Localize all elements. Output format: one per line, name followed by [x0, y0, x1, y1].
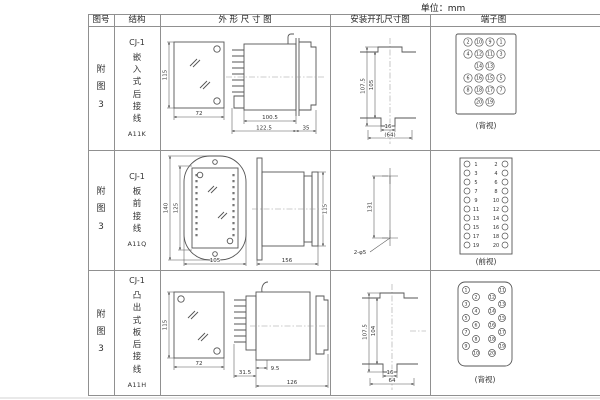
terminal-number: 12 — [493, 207, 499, 213]
terminal-pins — [232, 50, 244, 92]
terminal-grid: 1357924681012141618201113151719 — [463, 287, 506, 357]
outline-drawing-a11q: 140 125 105 156 115 — [160, 150, 330, 270]
header-figure-no: 图号 — [88, 14, 114, 26]
terminal-number: 15 — [473, 225, 479, 231]
terminal-number: 14 — [476, 64, 482, 70]
terminal-number: 18 — [493, 234, 499, 240]
terminal-number: 20 — [493, 243, 499, 249]
terminal-number: 20 — [476, 100, 482, 106]
terminal-number: 5 — [465, 316, 468, 322]
dim-flange-width: 105 — [210, 258, 221, 264]
front-view: 115 72 — [163, 42, 225, 120]
terminal-number: 10 — [493, 198, 499, 204]
terminal-number: 19 — [473, 243, 479, 249]
terminal-number: 11 — [473, 207, 479, 213]
terminal-drawing-a11h: 1357924681012141618201113151719 (背视) — [430, 270, 557, 395]
dim-depth-total: 122.5 — [256, 126, 272, 132]
terminal-circle — [464, 206, 470, 212]
header-structure: 结构 — [114, 14, 160, 26]
terminal-number: 2 — [466, 40, 469, 46]
outline-drawing-a11k: 115 72 100.5 122.5 35 — [160, 26, 330, 150]
view-label: (背视) — [476, 120, 497, 130]
terminal-number: 20 — [489, 351, 495, 357]
terminal-circle — [502, 161, 508, 167]
dim-cutout-inner-height: 104 — [371, 325, 377, 336]
terminal-svg-a11q: 135791113151719 2468101214161820 (前视) — [430, 150, 557, 270]
terminal-svg-a11h: 1357924681012141618201113151719 (背视) — [430, 270, 557, 395]
structure-code: A11H — [128, 381, 147, 389]
terminal-number: 12 — [489, 295, 495, 301]
terminal-circle — [464, 242, 470, 248]
terminal-number: 19 — [499, 344, 505, 350]
front-bezel — [299, 42, 316, 110]
dim-front-height: 115 — [163, 319, 169, 330]
terminal-number: 4 — [494, 171, 497, 177]
terminal-number: 6 — [466, 76, 469, 82]
terminal-number: 10 — [473, 351, 479, 357]
terminal-number: 11 — [499, 288, 505, 294]
install-drawing-a11q: 131 2-φ5 — [330, 150, 430, 270]
structure-code: A11Q — [127, 240, 146, 248]
terminal-circle — [464, 179, 470, 185]
front-view: 115 72 — [163, 292, 225, 370]
panel-cutout-profile: 107.5 104 16 64 — [362, 284, 426, 390]
model-label: CJ-1 — [129, 276, 145, 285]
terminal-number: 18 — [476, 88, 482, 94]
install-svg-a11h: 107.5 104 16 64 — [330, 270, 430, 395]
structure-type-text: 凸出式板后接线 — [132, 290, 143, 376]
terminal-drawing-a11k: 2109141211314136161558181772019 (背视) — [430, 26, 557, 150]
terminal-circle — [464, 224, 470, 230]
dim-cutout-width: (64) — [384, 133, 395, 139]
dim-tab-width: 16 — [385, 124, 392, 130]
front-view: 140 125 105 — [164, 156, 247, 266]
terminal-circle — [502, 179, 508, 185]
figure-no-cell-a11h: 附图3 — [88, 270, 114, 395]
dim-body-height: 125 — [174, 202, 180, 213]
outline-drawing-a11h: 115 72 9.5 31.5 126 — [160, 270, 330, 395]
dim-body-length: 126 — [287, 380, 298, 386]
dim-offset: 9.5 — [271, 366, 280, 372]
terminal-number: 16 — [489, 323, 495, 329]
terminal-circle — [502, 197, 508, 203]
glass-slash-marks — [188, 311, 208, 341]
terminal-number: 8 — [475, 337, 478, 343]
terminal-number: 5 — [499, 76, 502, 82]
terminal-circle — [502, 188, 508, 194]
side-view: 156 115 — [252, 158, 329, 266]
figure-no-text: 附图3 — [96, 307, 107, 358]
dim-tab-width: 16 — [387, 370, 394, 376]
figure-no-text: 附图3 — [96, 184, 107, 235]
terminal-number: 15 — [499, 316, 505, 322]
terminal-circle — [464, 188, 470, 194]
terminal-number: 1 — [499, 40, 502, 46]
dim-side-height: 115 — [323, 203, 329, 214]
terminal-number: 6 — [475, 323, 478, 329]
dim-flange-height: 140 — [164, 202, 170, 213]
terminal-circle — [502, 215, 508, 221]
side-view: 100.5 122.5 35 — [226, 34, 324, 134]
install-svg-a11k: 107.5 105 16 (64) — [330, 26, 430, 150]
dim-depth-1: 100.5 — [262, 115, 278, 121]
terminal-svg-a11k: 2109141211314136161558181772019 (背视) — [430, 26, 557, 150]
terminal-grid: 2109141211314136161558181772019 — [464, 38, 505, 106]
dim-front-width: 72 — [196, 111, 203, 117]
dim-front-height: 115 — [163, 69, 169, 80]
hole-spec-label: 2-φ5 — [354, 250, 367, 256]
drill-hole-layout: 131 2-φ5 — [354, 168, 398, 256]
terminal-number: 12 — [476, 52, 482, 58]
terminal-number: 13 — [487, 64, 493, 70]
terminal-number: 16 — [493, 225, 499, 231]
dim-bezel-depth: 35 — [303, 126, 310, 132]
structure-cell-a11k: CJ-1 嵌入式后接线 A11K — [114, 26, 160, 150]
mounting-flange — [184, 156, 246, 260]
terminal-grid-left: 135791113151719 — [464, 161, 479, 249]
terminal-circle — [464, 161, 470, 167]
terminal-number: 17 — [499, 330, 505, 336]
clip-detail — [262, 282, 268, 292]
terminal-number: 8 — [466, 88, 469, 94]
table-border-bottom — [88, 395, 600, 396]
terminal-number: 19 — [487, 100, 493, 106]
terminal-number: 3 — [499, 52, 502, 58]
terminal-number: 18 — [489, 337, 495, 343]
terminal-circle — [502, 206, 508, 212]
structure-type-text: 板前接线 — [132, 186, 143, 235]
glass-slash-marks — [190, 59, 210, 89]
terminal-pins — [234, 300, 246, 342]
terminal-circle — [502, 242, 508, 248]
terminal-number: 14 — [489, 309, 495, 315]
terminal-number: 15 — [487, 76, 493, 82]
install-svg-a11q: 131 2-φ5 — [330, 150, 430, 270]
structure-cell-a11q: CJ-1 板前接线 A11Q — [114, 150, 160, 270]
terminal-number: 16 — [476, 76, 482, 82]
structure-type-text: 嵌入式后接线 — [132, 52, 143, 126]
terminal-number: 7 — [499, 88, 502, 94]
view-label: (背视) — [475, 374, 496, 384]
terminal-number: 6 — [494, 180, 497, 186]
figure-no-text: 附图3 — [96, 62, 107, 113]
terminal-drawing-a11q: 135791113151719 2468101214161820 (前视) — [430, 150, 557, 270]
terminal-number: 9 — [488, 40, 491, 46]
figure-no-cell-a11q: 附图3 — [88, 150, 114, 270]
model-label: CJ-1 — [129, 38, 145, 47]
side-view: 9.5 31.5 126 — [234, 282, 328, 388]
terminal-number: 7 — [474, 189, 477, 195]
terminal-number: 2 — [494, 162, 497, 168]
rear-bezel — [316, 296, 328, 354]
terminal-number: 13 — [499, 302, 505, 308]
dim-cutout-outer-height: 107.5 — [361, 78, 367, 94]
terminal-number: 5 — [474, 180, 477, 186]
clip-detail — [288, 34, 294, 44]
page-edge-strip — [0, 397, 600, 399]
terminal-circle — [502, 233, 508, 239]
dim-cutout-width: 64 — [389, 378, 396, 384]
terminal-number: 17 — [487, 88, 493, 94]
terminal-number: 1 — [474, 162, 477, 168]
view-label: (前视) — [476, 256, 497, 266]
glass-slash-marks — [208, 186, 227, 219]
dim-cutout-outer-height: 107.5 — [363, 324, 369, 340]
terminal-number: 13 — [473, 216, 479, 222]
install-drawing-a11h: 107.5 104 16 64 — [330, 270, 430, 395]
terminal-number: 11 — [487, 52, 493, 58]
unit-label: 单位：mm — [413, 1, 473, 14]
terminal-grid-right: 2468101214161820 — [493, 161, 508, 249]
terminal-number: 14 — [493, 216, 499, 222]
header-outline-dims: 外 形 尺 寸 图 — [160, 14, 330, 26]
terminal-number: 7 — [465, 330, 468, 336]
terminal-number: 3 — [474, 171, 477, 177]
terminal-number: 4 — [475, 309, 478, 315]
dim-cutout-inner-height: 105 — [369, 79, 375, 90]
terminal-circle — [502, 170, 508, 176]
panel-cutout-profile: 107.5 105 16 (64) — [360, 38, 416, 144]
terminal-number: 8 — [494, 189, 497, 195]
terminal-number: 2 — [475, 295, 478, 301]
outline-svg-a11h: 115 72 9.5 31.5 126 — [160, 270, 330, 395]
install-drawing-a11k: 107.5 105 16 (64) — [330, 26, 430, 150]
terminal-number: 10 — [476, 40, 482, 46]
terminal-block-outline — [458, 282, 512, 366]
terminal-circle — [464, 215, 470, 221]
terminal-number: 9 — [465, 344, 468, 350]
terminal-circle — [464, 197, 470, 203]
terminal-number: 4 — [466, 52, 469, 58]
figure-no-cell-a11k: 附图3 — [88, 26, 114, 150]
header-install-dims: 安装开孔尺寸图 — [330, 14, 430, 26]
dim-length: 156 — [282, 258, 293, 264]
terminal-circle — [502, 224, 508, 230]
terminal-number: 17 — [473, 234, 479, 240]
dim-front-width: 72 — [196, 361, 203, 367]
header-terminal-diagram: 端子图 — [430, 14, 557, 26]
terminal-number: 1 — [465, 288, 468, 294]
structure-cell-a11h: CJ-1 凸出式板后接线 A11H — [114, 270, 160, 395]
terminal-circle — [464, 170, 470, 176]
terminal-number: 3 — [465, 302, 468, 308]
terminal-circle — [464, 233, 470, 239]
dim-hole-spacing: 131 — [368, 202, 374, 213]
structure-code: A11K — [128, 130, 146, 138]
outline-svg-a11q: 140 125 105 156 115 — [160, 150, 330, 270]
terminal-number: 9 — [474, 198, 477, 204]
model-label: CJ-1 — [129, 172, 145, 181]
dim-pin-depth: 31.5 — [239, 370, 252, 376]
outline-svg-a11k: 115 72 100.5 122.5 35 — [160, 26, 330, 150]
